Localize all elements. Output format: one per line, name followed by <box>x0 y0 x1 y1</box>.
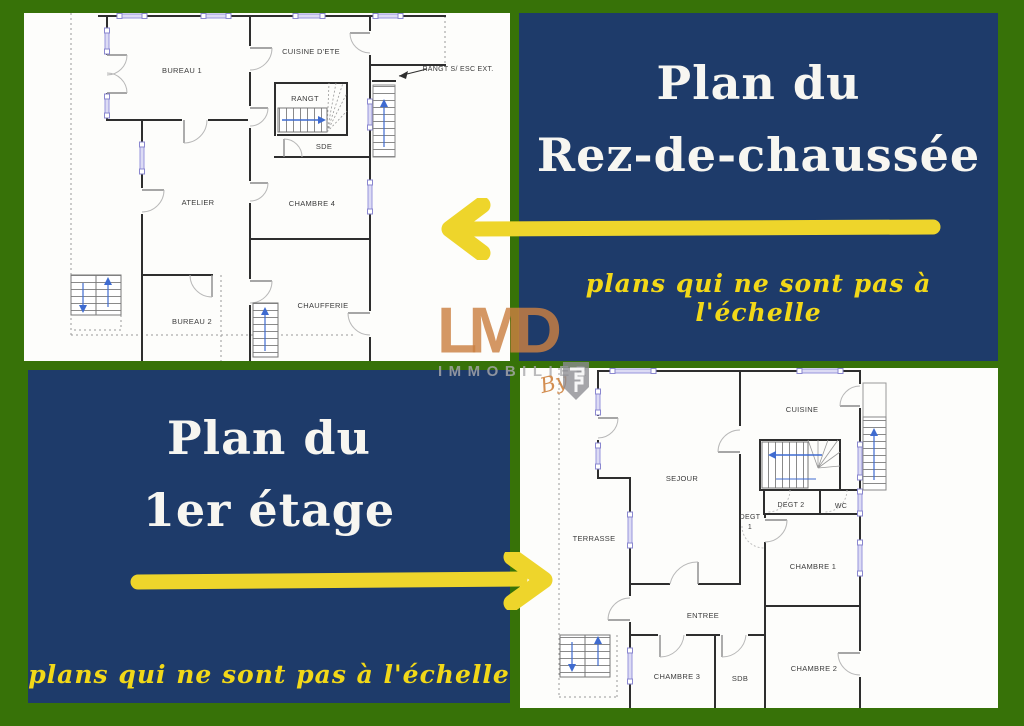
ground-floor-scale-note: plans qui ne sont pas à l'échelle <box>519 269 998 327</box>
room-label-degt2: DEGT 2 <box>778 502 805 509</box>
boiler-room-staircase <box>253 303 278 357</box>
room-label-rangt: RANGT <box>291 94 319 103</box>
arrow-to-first-plan-icon <box>128 552 556 610</box>
door-gaps <box>105 31 373 337</box>
room-label-atelier: ATELIER <box>182 198 215 207</box>
door-gaps <box>596 384 863 677</box>
room-label-cuisine-ete: CUISINE D'ETE <box>282 47 340 56</box>
doors <box>107 33 370 335</box>
room-label-wc: WC <box>835 503 847 510</box>
ground-floor-plan-drawing: BUREAU 1 CUISINE D'ETE RANGT SDE ATELIER… <box>24 13 510 361</box>
first-floor-plan-drawing: CUISINE SEJOUR DEGT 2 WC DEGT 1 TERRASSE… <box>520 368 998 708</box>
ground-floor-title: Plan du Rez-de-chaussée <box>519 13 998 191</box>
ground-floor-title-line1: Plan du <box>519 47 998 119</box>
first-floor-title-panel: Plan du 1er étage plans qui ne sont pas … <box>28 370 510 703</box>
room-label-rangt-ext: RANGT S/ ESC EXT. <box>422 66 493 73</box>
room-label-terrasse: TERRASSE <box>573 534 616 543</box>
room-label-bureau1: BUREAU 1 <box>162 66 202 75</box>
room-label-sdb: SDB <box>732 674 748 683</box>
room-label-degt1-line2: 1 <box>748 524 752 531</box>
interior-staircase <box>762 440 840 488</box>
room-label-degt1-line1: DEGT <box>740 514 761 521</box>
ground-floor-plan: BUREAU 1 CUISINE D'ETE RANGT SDE ATELIER… <box>24 13 510 361</box>
room-label-sde: SDE <box>316 142 332 151</box>
ground-floor-title-panel: Plan du Rez-de-chaussée plans qui ne son… <box>519 13 998 361</box>
first-floor-title-line2: 1er étage <box>28 474 510 546</box>
room-label-chaufferie: CHAUFFERIE <box>298 301 349 310</box>
central-staircase <box>278 83 347 132</box>
exterior-staircase <box>373 85 395 157</box>
room-label-sejour: SEJOUR <box>666 474 699 483</box>
exterior-staircase <box>863 383 886 490</box>
doors <box>598 386 860 675</box>
garden-staircase <box>71 275 121 315</box>
windows <box>105 14 404 215</box>
walls <box>598 371 860 708</box>
garden-staircase <box>560 635 610 677</box>
room-label-chambre1: CHAMBRE 1 <box>790 562 836 571</box>
room-label-entree: ENTREE <box>687 611 719 620</box>
ground-floor-title-line2: Rez-de-chaussée <box>519 119 998 191</box>
arrow-to-ground-plan-icon <box>436 198 944 260</box>
room-label-cuisine: CUISINE <box>786 405 819 414</box>
first-floor-plan: CUISINE SEJOUR DEGT 2 WC DEGT 1 TERRASSE… <box>520 368 998 708</box>
flyer-canvas: { "colors": { "frame_green": "#377208", … <box>0 0 1024 726</box>
room-label-bureau2: BUREAU 2 <box>172 317 212 326</box>
first-floor-scale-note: plans qui ne sont pas à l'échelle <box>28 660 510 689</box>
first-floor-title-line1: Plan du <box>28 402 510 474</box>
room-label-chambre4: CHAMBRE 4 <box>289 199 335 208</box>
first-floor-title: Plan du 1er étage <box>28 370 510 546</box>
room-label-chambre2: CHAMBRE 2 <box>791 664 837 673</box>
room-label-chambre3: CHAMBRE 3 <box>654 672 700 681</box>
